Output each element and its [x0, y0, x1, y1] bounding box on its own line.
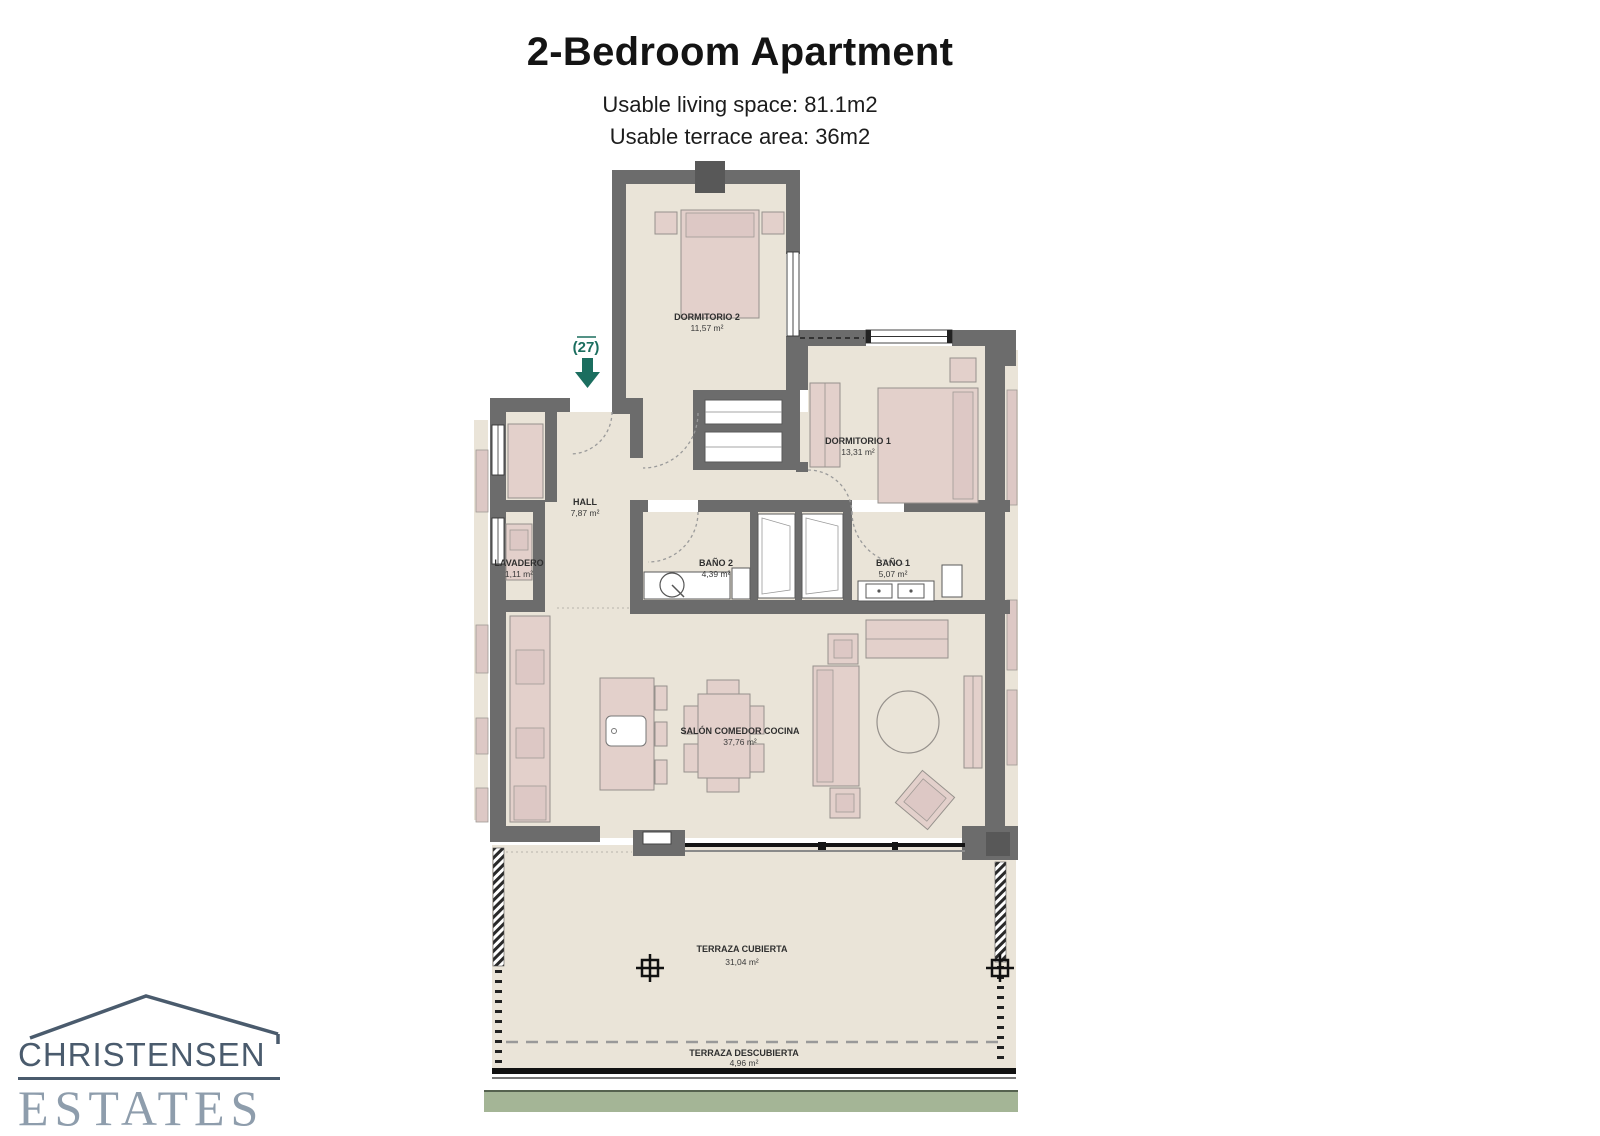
terrace-area-subtitle: Usable terrace area: 36m2	[0, 121, 1480, 153]
room-label-dormitorio2: DORMITORIO 2	[674, 312, 740, 322]
brand-type: ESTATES	[18, 1082, 286, 1135]
roof-icon	[18, 982, 286, 1044]
entrance-arrow-icon	[575, 358, 600, 388]
room-label-bano2: BAÑO 2	[699, 558, 733, 568]
page-header: 2-Bedroom Apartment Usable living space:…	[0, 30, 1480, 153]
garden-strip	[484, 1090, 1018, 1112]
room-label-salon: SALÓN COMEDOR COCINA	[681, 725, 801, 736]
living-space-subtitle: Usable living space: 81.1m2	[0, 89, 1480, 121]
room-label-dormitorio1: DORMITORIO 1	[825, 436, 891, 446]
room-label-bano1: BAÑO 1	[876, 558, 910, 568]
page-title: 2-Bedroom Apartment	[0, 30, 1480, 75]
room-area-dormitorio2: 11,57 m²	[691, 323, 724, 333]
floor-plan: (27) DORMITORIO 2 11,57 m² DORMITORIO 1 …	[460, 150, 1030, 1125]
room-label-terraza-cubierta: TERRAZA CUBIERTA	[697, 944, 788, 954]
unit-entrance-marker: (27)	[573, 337, 600, 388]
room-area-lavadero: 1,11 m²	[505, 569, 533, 579]
room-label-terraza-descubierta: TERRAZA DESCUBIERTA	[689, 1048, 799, 1058]
room-area-terraza-descubierta: 4,96 m²	[730, 1058, 759, 1068]
room-label-lavadero: LAVADERO	[494, 558, 543, 568]
room-area-salon: 37,76 m²	[723, 737, 757, 747]
unit-number-label: (27)	[573, 339, 600, 356]
room-area-bano1: 5,07 m²	[879, 569, 908, 579]
room-area-dormitorio1: 13,31 m²	[841, 447, 875, 457]
room-label-hall: HALL	[573, 497, 597, 507]
room-area-hall: 7,87 m²	[571, 508, 600, 518]
room-area-terraza-cubierta: 31,04 m²	[725, 957, 759, 967]
brand-name: CHRISTENSEN	[18, 1036, 286, 1074]
room-area-bano2: 4,39 m²	[702, 569, 731, 579]
brand-logo: CHRISTENSEN ESTATES	[18, 982, 286, 1135]
